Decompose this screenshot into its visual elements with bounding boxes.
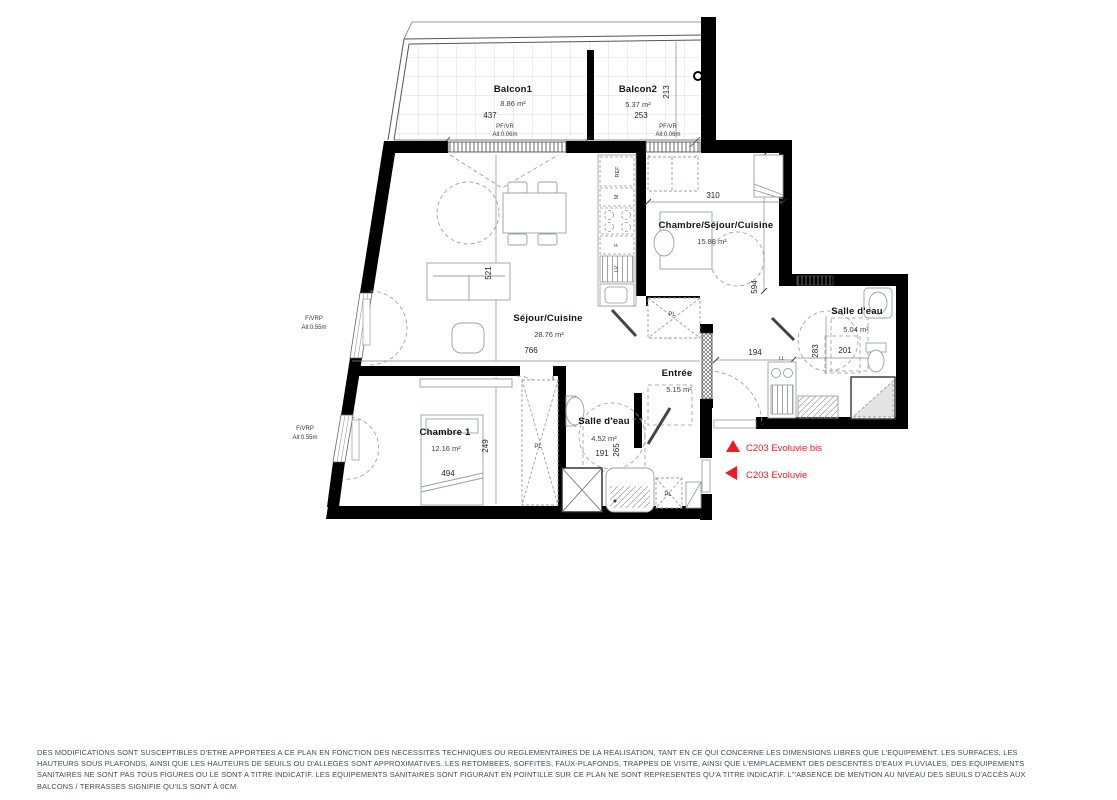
pfvr-1-sill: All:0.06m — [492, 132, 517, 138]
balcony1-sliding-window — [448, 142, 566, 152]
shower-tray — [798, 396, 838, 418]
sejour-furniture — [427, 182, 566, 353]
entree-name: Entrée — [662, 368, 693, 379]
fvrp-2-sill: All:0.55m — [292, 435, 317, 441]
salle-eau-1-depth: 283 — [811, 344, 820, 358]
studio-name: Chambre/Séjour/Cuisine — [659, 220, 774, 231]
studio-depth: 594 — [750, 280, 759, 294]
salle-eau-2-width: 191 — [595, 449, 609, 458]
salle-eau-2-name: Salle d'eau — [578, 416, 629, 427]
studio-width: 310 — [706, 191, 720, 200]
chambre1-width: 494 — [441, 469, 455, 478]
sejour-area: 28.76 m² — [534, 330, 564, 339]
studio-bed — [754, 155, 783, 197]
floor-plan-page: REF M F LV — [0, 0, 1117, 800]
fridge-label: REF — [615, 166, 621, 178]
washer-label: LL — [779, 356, 785, 362]
sejour-depth: 521 — [484, 266, 493, 280]
floor-plan-drawing: REF M F LV — [0, 0, 1117, 745]
balcon2-name: Balcon2 — [619, 84, 657, 95]
sejour-width: 766 — [524, 346, 538, 355]
disclaimer-line-2: HAUTEURS SOUS PLAFONDS, AINSI QUE LES HA… — [37, 758, 1107, 769]
salle-eau-2-depth: 265 — [612, 443, 621, 457]
salle-eau-1-name: Salle d'eau — [831, 306, 882, 317]
annotation-bis: C203 Evoluvie bis — [746, 443, 822, 454]
dining-table — [503, 193, 566, 233]
balcon1-name: Balcon1 — [494, 84, 533, 95]
shelf — [420, 379, 512, 387]
salle-eau-1-area: 5.04 m² — [843, 325, 869, 334]
closet-label-1: PL — [668, 312, 676, 318]
microwave-label: M — [614, 194, 620, 199]
sofa — [427, 263, 510, 300]
disclaimer-line-3: SANITAIRES NE SONT PAS TOUS FIGURES OU L… — [37, 769, 1107, 780]
sejour-name: Séjour/Cuisine — [513, 313, 582, 324]
hall-width: 194 — [748, 348, 762, 357]
triangle-left-icon — [725, 466, 737, 480]
salle-eau-2-area: 4.52 m² — [591, 434, 617, 443]
chambre1-area: 12.16 m² — [431, 444, 461, 453]
balcony2-sliding-window — [646, 142, 700, 152]
balcon2-area: 5.37 m² — [625, 100, 651, 109]
balcon2-depth: 213 — [662, 85, 671, 99]
fvrp-1-sill: All:0.55m — [301, 325, 326, 331]
studio-kitchenette — [648, 157, 698, 191]
wc-east — [868, 350, 884, 372]
salle-eau-1-width: 201 — [838, 346, 852, 355]
dishwasher-label: LV — [614, 266, 620, 273]
annotation-evoluvie: C203 Evoluvie — [746, 470, 807, 481]
door-threshold-bis — [714, 420, 756, 428]
fvrp-1: F/VRP — [305, 316, 323, 322]
chambre1-depth: 249 — [481, 439, 490, 453]
studio-furniture — [648, 155, 783, 338]
balcon1-width: 437 — [483, 111, 497, 120]
studio-area: 15.88 m² — [697, 237, 727, 246]
washer — [771, 385, 793, 414]
disclaimer-line-4: BALCONS / TERRASSES SIGNIFIE QU'ILS SONT… — [37, 781, 1107, 792]
triangle-up-icon — [726, 440, 740, 452]
plan-annotations: C203 Evoluvie bis C203 Evoluvie — [725, 440, 822, 481]
chambre1-name: Chambre 1 — [420, 427, 471, 438]
disclaimer: DES MODIFICATIONS SONT SUSCEPTIBLES D'ET… — [37, 747, 1107, 792]
bathroom-window — [797, 276, 833, 285]
facade-window-2 — [333, 415, 353, 462]
closet-label-2: PL — [534, 444, 542, 450]
pfvr-1: PF/VR — [496, 124, 514, 130]
entry-door-leaf — [702, 333, 712, 399]
disclaimer-line-1: DES MODIFICATIONS SONT SUSCEPTIBLES D'ET… — [37, 747, 1107, 758]
balcon2-width: 253 — [634, 111, 648, 120]
side-table — [452, 323, 484, 353]
pfvr-2: PF/VR — [659, 124, 677, 130]
door-threshold-evoluvie — [702, 460, 710, 492]
studio-chair — [654, 230, 674, 256]
pfvr-2-sill: All:0.06m — [655, 132, 680, 138]
balcony-divider-wall — [587, 50, 594, 140]
closet-label-3: PL — [664, 492, 672, 498]
fvrp-2: F/VRP — [296, 426, 314, 432]
entree-area: 5.15 m² — [666, 385, 692, 394]
balcon1-area: 8.86 m² — [500, 99, 526, 108]
kitchen-strip: REF M F LV — [598, 155, 636, 306]
